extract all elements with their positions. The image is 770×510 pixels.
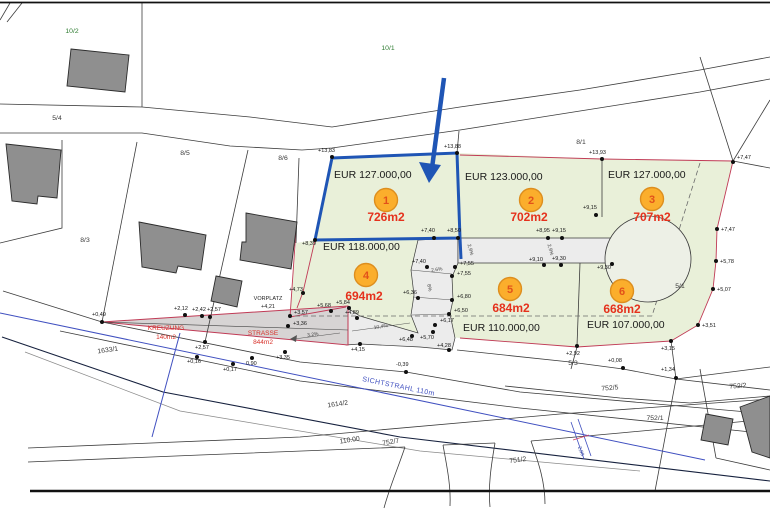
kreuzung-area-label: 140m2 (156, 334, 176, 341)
elevation-label: +3,35 (276, 355, 290, 361)
parcel-number: 5/1 (675, 283, 685, 290)
elevation-label: +13,88 (444, 144, 461, 150)
elevation-label: +2,12 (174, 306, 188, 312)
survey-point (575, 344, 579, 348)
elevation-label: 0,90 (246, 361, 257, 367)
access-road-strip (458, 238, 630, 263)
survey-point (450, 298, 454, 302)
survey-point (329, 309, 333, 313)
elevation-label: +13,93 (589, 150, 606, 156)
survey-point (208, 315, 212, 319)
elevation-label: +4,73 (289, 287, 303, 293)
survey-point (731, 160, 735, 164)
elevation-label: +9,15 (552, 228, 566, 234)
building (211, 276, 242, 307)
site-plan: 2,00 KREUZUNG 140m2 STRASSE 844m2 VORPLA… (0, 0, 770, 510)
parcel-number: 5/3 (568, 360, 578, 367)
elevation-label: +0,49 (92, 312, 106, 318)
plot-area: 684m2 (492, 301, 530, 315)
survey-point (714, 259, 718, 263)
elevation-label: +8,95 (536, 228, 550, 234)
survey-point (711, 287, 715, 291)
survey-point (231, 362, 235, 366)
elevation-label: +8,39 (302, 241, 316, 247)
survey-point (621, 366, 625, 370)
site-plan-svg: 2,00 KREUZUNG 140m2 STRASSE 844m2 VORPLA… (0, 0, 770, 510)
survey-point (433, 323, 437, 327)
building (67, 49, 129, 92)
elevation-label: +6,80 (457, 294, 471, 300)
elevation-label: +3,51 (702, 323, 716, 329)
survey-point (330, 155, 334, 159)
survey-point (404, 370, 408, 374)
elevation-label: +7,40 (412, 259, 426, 265)
elevation-label: +7,47 (737, 155, 751, 161)
survey-point (447, 312, 451, 316)
elevation-label: +9,10 (529, 257, 543, 263)
plot-price: EUR 110.000,00 (463, 322, 540, 334)
elevation-label: +2,42 (192, 307, 206, 313)
plot-area: 668m2 (603, 302, 641, 316)
elevation-label: +8,50 (447, 228, 461, 234)
elevation-label: +5,07 (717, 287, 731, 293)
survey-point (358, 342, 362, 346)
survey-point (594, 213, 598, 217)
building (701, 414, 733, 445)
survey-point (288, 314, 292, 318)
elevation-label: +5,68 (317, 303, 331, 309)
survey-point (431, 330, 435, 334)
survey-point (425, 265, 429, 269)
elevation-label: +0,17 (223, 367, 237, 373)
survey-point (183, 313, 187, 317)
survey-point (559, 263, 563, 267)
parcel-number: 10/1 (381, 45, 394, 52)
building (240, 213, 297, 269)
survey-point (250, 356, 254, 360)
elevation-label: +5,78 (720, 259, 734, 265)
survey-point (600, 157, 604, 161)
plot-number: 4 (363, 270, 370, 282)
elevation-label: +5,70 (420, 335, 434, 341)
parcel-number: 8/6 (278, 155, 288, 162)
plot-price: EUR 127.000,00 (334, 169, 412, 181)
elevation-label: +3,15 (661, 346, 675, 352)
elevation-label: +6,17 (440, 318, 454, 324)
parcel-number: 8/3 (80, 237, 90, 244)
plot-number: 3 (649, 194, 655, 206)
strasse-label: STRASSE (248, 330, 279, 337)
elevation-label: +3,36 (293, 321, 307, 327)
survey-point (453, 265, 457, 269)
elevation-label: +7,55 (457, 271, 471, 277)
survey-point (283, 350, 287, 354)
survey-point (546, 236, 550, 240)
elevation-label: +9,15 (583, 205, 597, 211)
elevation-label: +6,36 (403, 290, 417, 296)
survey-point (560, 236, 564, 240)
parcel-number: 5/4 (52, 115, 62, 122)
elevation-label: +0,08 (608, 358, 622, 364)
elevation-label: +2,92 (566, 351, 580, 357)
elevation-label: +4,15 (351, 347, 365, 353)
vorplatz-elevation: +4,21 (261, 304, 275, 310)
survey-point (200, 314, 204, 318)
plot-number: 5 (507, 284, 513, 296)
plot-area: 726m2 (367, 210, 405, 224)
plot-price: EUR 118.000,00 (323, 241, 400, 253)
plot-number: 2 (528, 195, 534, 207)
parcel-number: 8/1 (576, 139, 586, 146)
survey-point (416, 296, 420, 300)
elevation-label: +1,34 (661, 367, 675, 373)
elevation-label: +2,57 (207, 307, 221, 313)
selected-plot-outline-stub (460, 238, 461, 259)
survey-point (456, 236, 460, 240)
building (6, 144, 61, 204)
survey-point (100, 320, 104, 324)
strasse-area-label: 844m2 (253, 339, 273, 346)
plot-area: 707m2 (633, 210, 671, 224)
elevation-label: +9,30 (552, 256, 566, 262)
plot-price: EUR 107.000,00 (587, 319, 665, 331)
elevation-label: +7,55 (460, 261, 474, 267)
parcel-number: 8/5 (180, 150, 190, 157)
elevation-label: +3,57 (294, 310, 308, 316)
parcel-number: 752/2 (729, 382, 747, 390)
survey-point (450, 274, 454, 278)
parcel-number: 10/2 (65, 28, 78, 35)
elevation-label: +9,30 (597, 265, 611, 271)
elevation-label: -0,39 (396, 362, 409, 368)
elevation-label: +2,57 (195, 345, 209, 351)
plot-number: 6 (619, 286, 625, 298)
survey-point (542, 263, 546, 267)
elevation-label: +0,16 (187, 359, 201, 365)
survey-point (203, 340, 207, 344)
survey-point (696, 323, 700, 327)
survey-point (355, 316, 359, 320)
survey-point (432, 236, 436, 240)
survey-point (669, 339, 673, 343)
elevation-label: +4,28 (437, 343, 451, 349)
plot-area: 702m2 (510, 210, 548, 224)
plot-price: EUR 127.000,00 (608, 169, 686, 181)
kreuzung-label: KREUZUNG (148, 325, 184, 332)
plot-area: 694m2 (345, 289, 383, 303)
parcel-number: 752/5 (601, 384, 619, 392)
plot-number: 1 (383, 195, 389, 207)
elevation-label: +13,83 (318, 148, 335, 154)
survey-point (715, 227, 719, 231)
elevation-label: +7,47 (721, 227, 735, 233)
parcel-number: 752/1 (646, 415, 663, 422)
elevation-label: +4,89 (345, 310, 359, 316)
plot-price: EUR 123.000,00 (465, 171, 543, 183)
survey-point (455, 151, 459, 155)
vorplatz-label: VORPLATZ (254, 296, 283, 302)
survey-point (286, 324, 290, 328)
elevation-label: +6,50 (454, 308, 468, 314)
elevation-label: +7,40 (421, 228, 435, 234)
survey-point (674, 376, 678, 380)
elevation-label: +6,48 (399, 337, 413, 343)
